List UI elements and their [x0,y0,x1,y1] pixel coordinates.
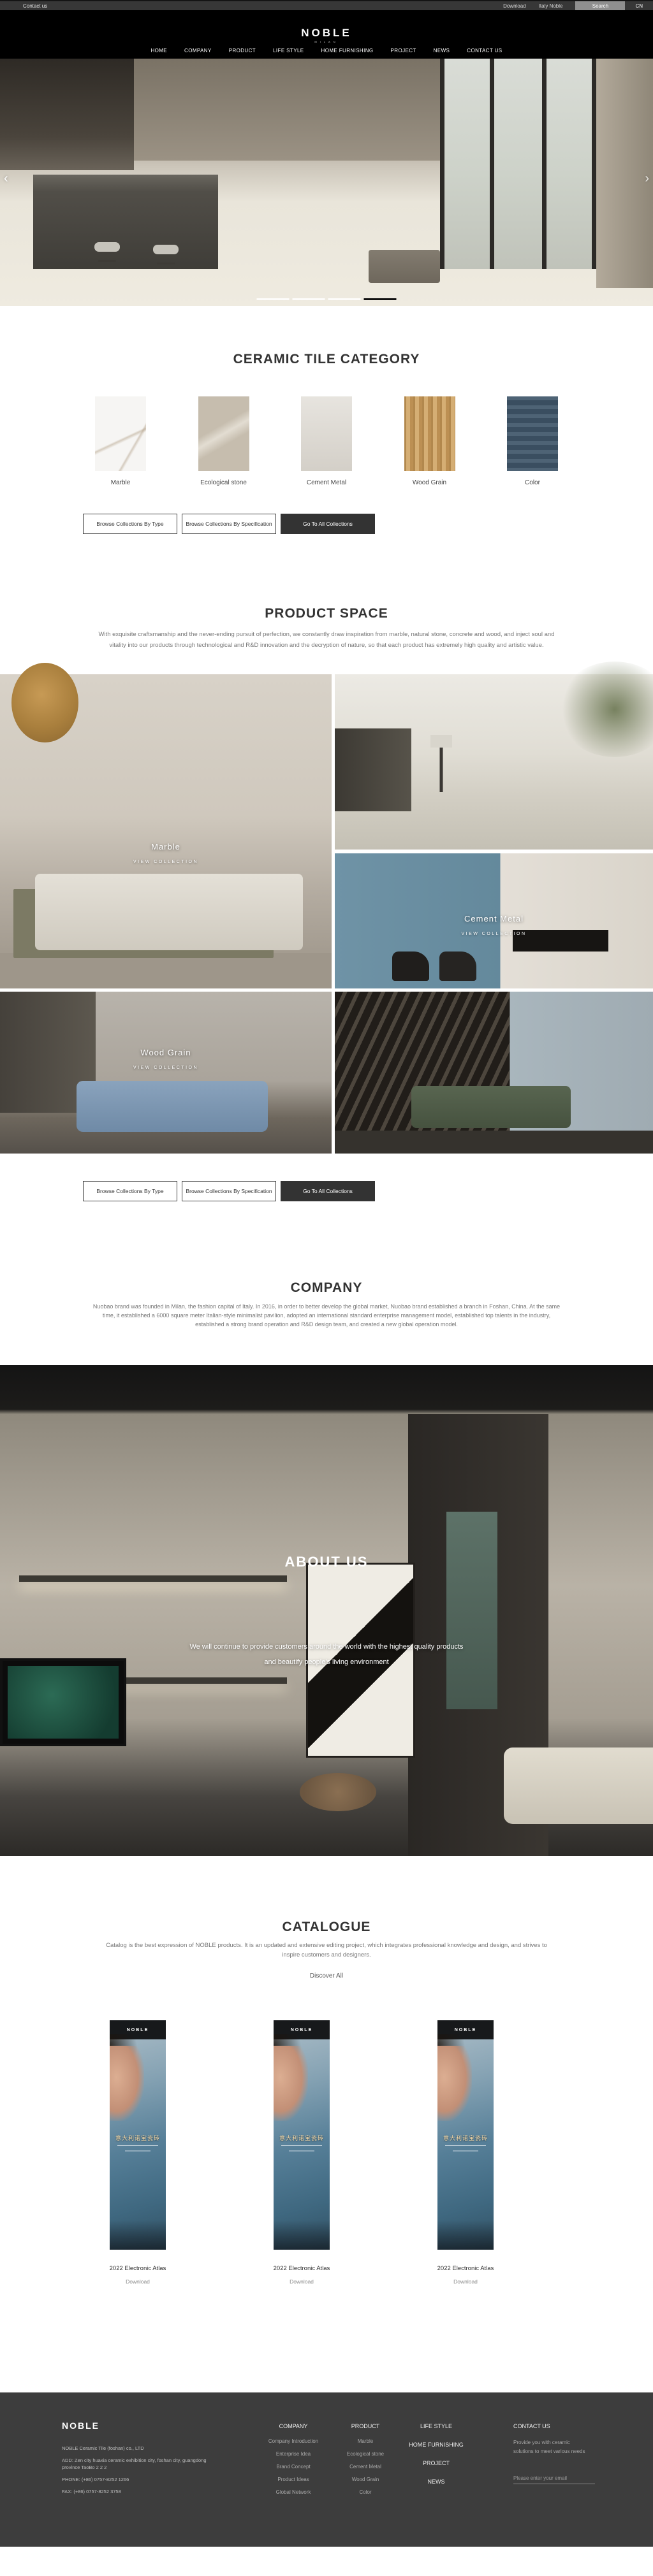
slide-indicator-2[interactable] [293,298,325,300]
window-frame [440,59,444,269]
language-toggle[interactable]: CN [635,3,643,9]
contact-us-link[interactable]: Contact us [0,3,47,9]
footer-column-title: PRODUCT [327,2423,404,2429]
space-tile-terrace[interactable] [335,674,653,850]
poster-divider [453,2150,478,2152]
footer-link-project[interactable]: PROJECT [398,2460,474,2466]
tile-wood-slats [335,992,510,1154]
poster-bottom-shade [274,2220,330,2250]
footer-link-company-introduction[interactable]: Company Introduction [255,2438,332,2444]
about-image-tv [0,1658,126,1746]
poster-model-face [437,2046,472,2121]
footer-contact-text: Provide you with ceramic solutions to me… [513,2438,587,2456]
hero-image-shelving [0,59,134,170]
footer-column-product: PRODUCT Marble Ecological stone Cement M… [327,2423,404,2502]
footer-link-wood-grain[interactable]: Wood Grain [327,2477,404,2482]
wall-art-decor [11,663,78,742]
hero-image-wall [134,59,440,161]
catalogue-download-link[interactable]: Download [254,2278,349,2285]
topbar: Contact us Download Italy Noble Search C… [0,0,653,10]
catalogue-item-3: NOBLE 意大利诺宝瓷砖 2022 Electronic Atlas Down… [423,2020,558,2285]
tile-category-name: Wood Grain [0,1048,332,1057]
tile-chairs [392,952,429,981]
tile-blue-sofa [77,1081,268,1132]
ceramic-tile-category-section: CERAMIC TILE CATEGORY Marble Ecological … [0,306,653,571]
footer-link-life-style[interactable]: LIFE STYLE [398,2423,474,2429]
site-header: NOBLE MILAN HOME COMPANY PRODUCT LIFE ST… [0,10,653,59]
ecological-stone-swatch[interactable] [198,396,249,471]
catalogue-download-link[interactable]: Download [90,2278,186,2285]
space-tile-marble[interactable]: Marble VIEW COLLECTION [0,674,332,988]
company-title: COMPANY [0,1280,653,1296]
swatch-label: Wood Grain [404,479,455,486]
tile-green-sofa [411,1086,571,1128]
poster-model-face [274,2046,308,2121]
company-paragraph: Nuobao brand was founded in Milan, the f… [91,1302,562,1329]
catalogue-covers-row: NOBLE 意大利诺宝瓷砖 2022 Electronic Atlas Down… [95,2020,558,2285]
topbar-links: Download Italy Noble Search CN [503,1,653,10]
footer-company-info: NOBLE Ceramic Tile (foshan) co., LTD ADD… [62,2445,221,2500]
footer-contact-column: CONTACT US Provide you with ceramic solu… [513,2423,599,2484]
window-frame [542,59,547,269]
window-frame [490,59,494,269]
about-image-coffee-table [300,1773,376,1811]
poster-chinese-title: 意大利诺宝瓷砖 [110,2134,166,2142]
poster-divider [289,2150,314,2152]
chevron-left-icon[interactable]: ‹ [4,172,8,185]
about-image-green-panel [446,1512,497,1709]
footer-menu-links: LIFE STYLE HOME FURNISHING PROJECT NEWS [398,2423,474,2497]
footer-contact-title: CONTACT US [513,2423,599,2429]
tile-category-name: Marble [0,842,332,851]
tile-counter [335,728,411,811]
category-title: CERAMIC TILE CATEGORY [0,352,653,367]
footer-link-ecological-stone[interactable]: Ecological stone [327,2451,404,2457]
footer-link-global-network[interactable]: Global Network [255,2489,332,2495]
poster-bottom-shade [437,2220,494,2250]
chevron-right-icon[interactable]: › [645,172,649,185]
space-tile-wood-grain[interactable]: Wood Grain VIEW COLLECTION [0,992,332,1154]
catalogue-item-name: 2022 Electronic Atlas [90,2265,186,2272]
marble-swatch[interactable] [95,396,146,471]
product-space-paragraph: With exquisite craftsmanship and the nev… [95,629,558,651]
catalogue-cover-1[interactable]: NOBLE 意大利诺宝瓷砖 [110,2020,166,2250]
category-item-marble: Marble [95,396,146,486]
footer-link-color[interactable]: Color [327,2489,404,2495]
about-us-paragraph: We will continue to provide customers ar… [0,1639,653,1670]
noble-logo-subtitle: MILAN [0,40,653,43]
nav-contact-us[interactable]: CONTACT US [467,48,502,54]
hero-image-stool [94,242,120,252]
slide-indicator-4-active[interactable] [364,298,397,300]
hero-image-kitchen-island [33,175,218,269]
tile-floor [0,953,332,988]
nav-home[interactable]: HOME [150,48,167,54]
about-us-title: ABOUT US [0,1554,653,1570]
catalogue-item-name: 2022 Electronic Atlas [254,2265,349,2272]
hero-image-window [440,59,596,269]
slide-indicator-3[interactable] [328,298,361,300]
go-to-all-collections-button[interactable]: Go To All Collections [281,1181,375,1201]
view-collection-link[interactable]: VIEW COLLECTION [0,860,332,864]
tile-sofa [35,874,303,950]
tv-screen [8,1666,119,1739]
color-swatch[interactable] [507,396,558,471]
product-space-title: PRODUCT SPACE [0,606,653,621]
nav-project[interactable]: PROJECT [391,48,416,54]
footer-phone: PHONE: (+86) 0757-8252 1266 [62,2476,221,2483]
footer-link-home-furnishing[interactable]: HOME FURNISHING [398,2442,474,2448]
catalogue-section: CATALOGUE Catalog is the best expression… [0,1856,653,2285]
go-to-all-collections-button[interactable]: Go To All Collections [281,514,375,534]
browse-by-specification-button[interactable]: Browse Collections By Specification [182,514,276,534]
category-item-wood-grain: Wood Grain [404,396,455,486]
footer-link-product-ideas[interactable]: Product Ideas [255,2477,332,2482]
nav-product[interactable]: PRODUCT [229,48,256,54]
tile-category-name: Cement Metal [335,914,653,923]
catalogue-item-1: NOBLE 意大利诺宝瓷砖 2022 Electronic Atlas Down… [95,2020,259,2285]
poster-divider [445,2145,486,2146]
wood-grain-swatch[interactable] [404,396,455,471]
tile-greenery [557,662,653,757]
italy-noble-link[interactable]: Italy Noble [539,3,563,9]
poster-brand-logo: NOBLE [455,2028,477,2032]
cement-metal-swatch[interactable] [301,396,352,471]
about-line-2: and beautify people's living environment [0,1654,653,1670]
poster-bottom-shade [110,2220,166,2250]
catalogue-title: CATALOGUE [0,1920,653,1935]
product-space-section: PRODUCT SPACE With exquisite craftsmansh… [0,571,653,1201]
footer-company-name: NOBLE Ceramic Tile (foshan) co., LTD [62,2445,221,2452]
poster-divider [125,2150,150,2152]
space-tile-cement-metal[interactable]: Cement Metal VIEW COLLECTION [335,853,653,988]
footer-link-news[interactable]: NEWS [398,2478,474,2485]
browse-by-type-button[interactable]: Browse Collections By Type [83,1181,177,1201]
poster-brand-logo: NOBLE [127,2028,149,2032]
footer-column-company: COMPANY Company Introduction Enterprise … [255,2423,332,2502]
footer: NOBLE NOBLE Ceramic Tile (foshan) co., L… [0,2392,653,2547]
browse-by-specification-button[interactable]: Browse Collections By Specification [182,1181,276,1201]
poster-divider [117,2145,158,2146]
about-line-1: We will continue to provide customers ar… [0,1639,653,1654]
footer-logo: NOBLE [62,2420,99,2431]
category-item-ecological-stone: Ecological stone [198,396,249,486]
collection-buttons-row: Browse Collections By Type Browse Collec… [83,1181,570,1201]
noble-logo[interactable]: NOBLE [0,10,653,40]
view-collection-link[interactable]: VIEW COLLECTION [0,1066,332,1070]
catalogue-cover-3[interactable]: NOBLE 意大利诺宝瓷砖 [437,2020,494,2250]
category-item-cement-metal: Cement Metal [301,396,352,486]
search-button[interactable]: Search [575,1,625,10]
slide-indicators [257,298,397,300]
about-us-section: ABOUT US We will continue to provide cus… [0,1365,653,1856]
poster-divider [281,2145,322,2146]
footer-link-cement-metal[interactable]: Cement Metal [327,2464,404,2470]
discover-all-link[interactable]: Discover All [0,1972,653,1979]
catalogue-paragraph: Catalog is the best expression of NOBLE … [103,1941,550,1960]
nav-home-furnishing[interactable]: HOME FURNISHING [321,48,374,54]
nav-company[interactable]: COMPANY [184,48,212,54]
swatch-label: Color [507,479,558,486]
catalogue-download-link[interactable]: Download [418,2278,513,2285]
category-item-color: Color [507,396,558,486]
window-frame [592,59,596,269]
collection-buttons-row: Browse Collections By Type Browse Collec… [83,514,570,534]
about-image-white-sofa [504,1747,653,1824]
poster-brand-logo: NOBLE [291,2028,313,2032]
product-space-grid: Marble VIEW COLLECTION Cement Metal VIEW… [0,674,653,1154]
download-link[interactable]: Download [503,3,526,9]
tile-floor [335,1131,653,1154]
email-subscribe-input[interactable] [513,2473,595,2484]
poster-chinese-title: 意大利诺宝瓷砖 [274,2134,330,2142]
footer-address: ADD: Zen city huaxia ceramic exhibition … [62,2457,221,2471]
catalogue-cover-2[interactable]: NOBLE 意大利诺宝瓷砖 [274,2020,330,2250]
footer-column-title: COMPANY [255,2423,332,2429]
browse-by-type-button[interactable]: Browse Collections By Type [83,514,177,534]
space-tile-slat-wall[interactable] [335,992,653,1154]
poster-chinese-title: 意大利诺宝瓷砖 [437,2134,494,2142]
footer-link-enterprise-idea[interactable]: Enterprise Idea [255,2451,332,2457]
poster-model-face [110,2046,144,2121]
hero-slider[interactable]: ‹ › [0,59,653,306]
company-section: COMPANY Nuobao brand was founded in Mila… [0,1280,653,1329]
swatch-label: Ecological stone [198,479,249,486]
hero-image-stool [153,245,179,254]
nav-news[interactable]: NEWS [434,48,450,54]
footer-link-brand-concept[interactable]: Brand Concept [255,2464,332,2470]
view-collection-link[interactable]: VIEW COLLECTION [335,932,653,936]
category-swatches: Marble Ecological stone Cement Metal Woo… [95,396,558,486]
hero-image-ottoman [369,250,440,283]
swatch-label: Marble [95,479,146,486]
nav-life-style[interactable]: LIFE STYLE [273,48,304,54]
tile-stool [430,735,452,792]
catalogue-item-2: NOBLE 意大利诺宝瓷砖 2022 Electronic Atlas Down… [259,2020,423,2285]
footer-link-marble[interactable]: Marble [327,2438,404,2444]
footer-fax: FAX: (+86) 0757-8252 3758 [62,2488,221,2495]
main-nav: HOME COMPANY PRODUCT LIFE STYLE HOME FUR… [0,48,653,54]
slide-indicator-1[interactable] [257,298,290,300]
catalogue-item-name: 2022 Electronic Atlas [418,2265,513,2272]
about-image-lit-shelf [19,1575,287,1582]
swatch-label: Cement Metal [301,479,352,486]
